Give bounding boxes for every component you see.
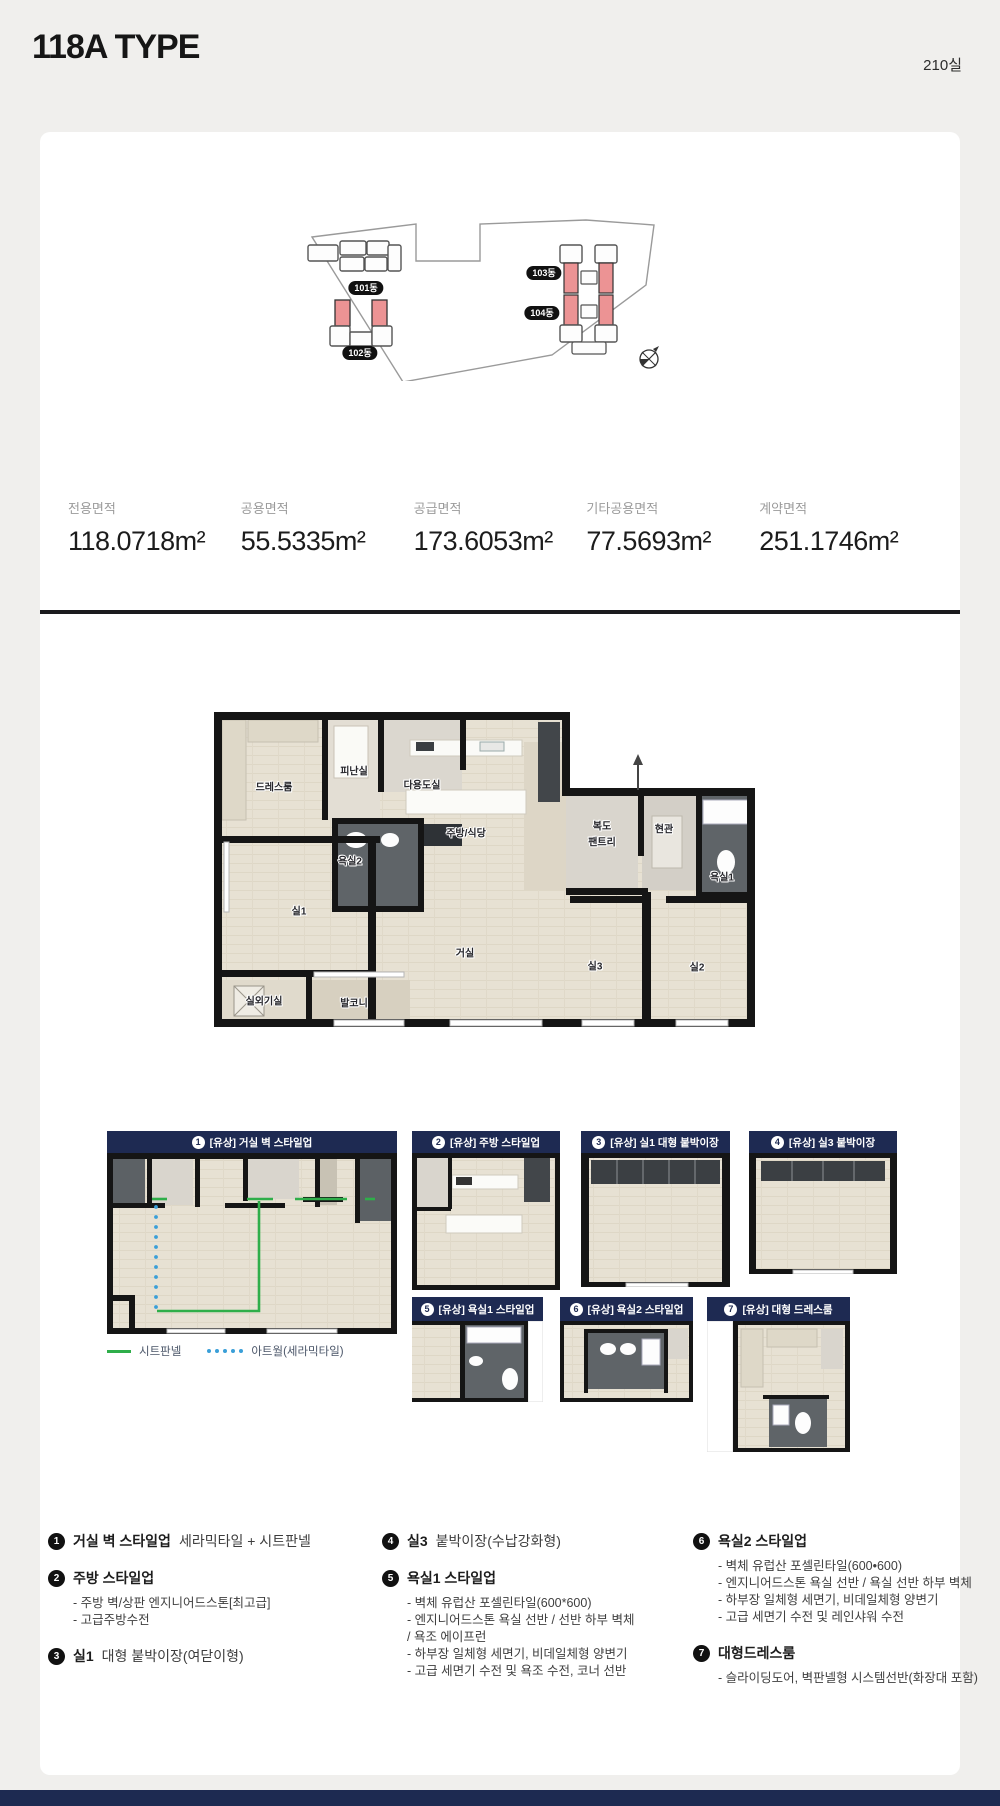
panel-title: [유상] 욕실1 스타일업	[439, 1302, 535, 1317]
panel-number-badge: 6	[570, 1303, 583, 1316]
option-item-7: 7 대형드레스룸 - 슬라이딩도어, 벽판넬형 시스템선반(화장대 포함)	[693, 1643, 993, 1687]
spec-value: 55.5335m²	[241, 526, 414, 557]
panel-number-badge: 4	[771, 1136, 784, 1149]
panel-header: 3 [유상] 실1 대형 붙박이장	[581, 1131, 730, 1153]
panel-title: [유상] 주방 스타일업	[450, 1135, 540, 1150]
legend-artwall: 아트월(세라믹타일)	[207, 1343, 343, 1359]
option-title: 대형드레스룸	[718, 1643, 795, 1663]
panel-image-room3	[749, 1153, 897, 1274]
unit-count-label: 210실	[923, 54, 962, 75]
option-column-2: 4 실3 붙박이장(수납강화형) 5 욕실1 스타일업 - 벽체 유럽산 포셀린…	[382, 1531, 682, 1697]
room-label-room3: 실3	[588, 962, 603, 973]
room-label-pantry: 팬트리	[588, 838, 616, 849]
option-item-5: 5 욕실1 스타일업 - 벽체 유럽산 포셀린타일(600*600) - 엔지니…	[382, 1568, 682, 1680]
panel-header: 5 [유상] 욕실1 스타일업	[412, 1297, 543, 1321]
legend-sheet-panel: 시트판넬	[107, 1343, 181, 1359]
panel-title: [유상] 욕실2 스타일업	[588, 1302, 684, 1317]
option-item-2: 2 주방 스타일업 - 주방 벽/상판 엔지니어드스톤[최고급] - 고급주방수…	[48, 1568, 348, 1629]
room-label-evacuation: 피난실	[340, 767, 368, 778]
room-label-room2: 실2	[690, 963, 705, 974]
room-label-bath1: 욕실1	[710, 873, 734, 884]
room-label-bath2: 욕실2	[338, 857, 362, 868]
room-label-entrance: 현관	[655, 825, 673, 836]
option-item-3: 3 실1 대형 붙박이장(여닫이형)	[48, 1646, 348, 1666]
building-label-104: 104동	[524, 306, 559, 320]
panel-image-bath1	[412, 1321, 543, 1402]
panel-living-wall-styleup: 1 [유상] 거실 벽 스타일업	[107, 1131, 397, 1334]
spec-contract-area: 계약면적 251.1746m²	[759, 498, 932, 557]
option-subtitle: 붙박이장(수납강화형)	[436, 1531, 561, 1551]
room-label-ac-room: 실외기실	[246, 997, 283, 1008]
option-title: 거실 벽 스타일업	[73, 1531, 171, 1551]
blue-dots-swatch	[207, 1349, 243, 1353]
panel-image-dressroom	[707, 1321, 850, 1452]
spec-exclusive-area: 전용면적 118.0718m²	[68, 498, 241, 557]
option-panels: 1 [유상] 거실 벽 스타일업	[40, 1131, 960, 1535]
floor-plan-drawing	[214, 712, 762, 1030]
panel-number-badge: 5	[421, 1303, 434, 1316]
spec-label: 전용면적	[68, 498, 241, 517]
spec-common-area: 공용면적 55.5335m²	[241, 498, 414, 557]
spec-value: 118.0718m²	[68, 526, 241, 557]
section-divider	[40, 610, 960, 614]
panel-bath1-styleup: 5 [유상] 욕실1 스타일업	[412, 1297, 543, 1402]
compass-icon	[640, 346, 659, 368]
panel-number-badge: 3	[592, 1136, 605, 1149]
spec-value: 173.6053m²	[414, 526, 587, 557]
option-details: - 벽체 유럽산 포셀린타일(600*600) - 엔지니어드스톤 욕실 선반 …	[407, 1595, 682, 1680]
option-number-badge: 2	[48, 1570, 65, 1587]
option-title: 욕실2 스타일업	[718, 1531, 807, 1551]
option-subtitle: 대형 붙박이장(여닫이형)	[102, 1646, 244, 1666]
area-specs: 전용면적 118.0718m² 공용면적 55.5335m² 공급면적 173.…	[68, 498, 932, 557]
site-plan-map	[250, 215, 660, 381]
spec-supply-area: 공급면적 173.6053m²	[414, 498, 587, 557]
option-number-badge: 5	[382, 1570, 399, 1587]
option-number-badge: 7	[693, 1645, 710, 1662]
option-details: - 주방 벽/상판 엔지니어드스톤[최고급] - 고급주방수전	[73, 1595, 348, 1629]
floor-plan: 드레스룸 피난실 다용도실 욕실2 주방/식당 복도 팬트리 현관 욕실1 실1…	[214, 712, 762, 1030]
green-line-swatch	[107, 1350, 131, 1353]
legend-label: 시트판넬	[139, 1343, 181, 1359]
panel-room3-closet: 4 [유상] 실3 붙박이장	[749, 1131, 897, 1274]
spec-other-common-area: 기타공용면적 77.5693m²	[586, 498, 759, 557]
option-item-4: 4 실3 붙박이장(수납강화형)	[382, 1531, 682, 1551]
panel-title: [유상] 실3 붙박이장	[789, 1135, 875, 1150]
option-column-3: 6 욕실2 스타일업 - 벽체 유럽산 포셀린타일(600•600) - 엔지니…	[693, 1531, 993, 1704]
panel-header: 1 [유상] 거실 벽 스타일업	[107, 1131, 397, 1153]
option-item-1: 1 거실 벽 스타일업 세라믹타일 + 시트판넬	[48, 1531, 348, 1551]
room-label-balcony: 발코니	[340, 999, 368, 1010]
panel-image-room1	[581, 1153, 730, 1287]
footer-bar	[0, 1790, 1000, 1806]
panel-header: 6 [유상] 욕실2 스타일업	[560, 1297, 693, 1321]
panel-kitchen-styleup: 2 [유상] 주방 스타일업	[412, 1131, 560, 1290]
panel-room1-closet: 3 [유상] 실1 대형 붙박이장	[581, 1131, 730, 1287]
option-column-1: 1 거실 벽 스타일업 세라믹타일 + 시트판넬 2 주방 스타일업 - 주방 …	[48, 1531, 348, 1683]
room-label-corridor: 복도	[593, 822, 611, 833]
panel-title: [유상] 거실 벽 스타일업	[210, 1135, 313, 1150]
panel-image-kitchen	[412, 1153, 560, 1290]
room-label-utility: 다용도실	[404, 781, 441, 792]
option-details: - 벽체 유럽산 포셀린타일(600•600) - 엔지니어드스톤 욕실 선반 …	[718, 1558, 993, 1626]
panel-number-badge: 2	[432, 1136, 445, 1149]
spec-label: 공용면적	[241, 498, 414, 517]
panel-bath2-styleup: 6 [유상] 욕실2 스타일업	[560, 1297, 693, 1402]
option-number-badge: 3	[48, 1648, 65, 1665]
panel-large-dressroom: 7 [유상] 대형 드레스룸	[707, 1297, 850, 1452]
site-plan: 101동 102동 103동 104동	[250, 215, 660, 381]
spec-label: 공급면적	[414, 498, 587, 517]
option-title: 실3	[407, 1531, 428, 1551]
panel-image-bath2	[560, 1321, 693, 1402]
spec-value: 251.1746m²	[759, 526, 932, 557]
panel-title: [유상] 실1 대형 붙박이장	[610, 1135, 719, 1150]
spec-label: 계약면적	[759, 498, 932, 517]
option-title: 주방 스타일업	[73, 1568, 154, 1588]
spec-label: 기타공용면적	[586, 498, 759, 517]
option-details: - 슬라이딩도어, 벽판넬형 시스템선반(화장대 포함)	[718, 1670, 993, 1687]
option-subtitle: 세라믹타일 + 시트판넬	[179, 1531, 311, 1551]
content-card: 101동 102동 103동 104동 전용면적 118.0718m² 공용면적…	[40, 132, 960, 1775]
room-label-living: 거실	[456, 949, 474, 960]
room-label-dressroom: 드레스룸	[256, 783, 293, 794]
panel-header: 4 [유상] 실3 붙박이장	[749, 1131, 897, 1153]
option-item-6: 6 욕실2 스타일업 - 벽체 유럽산 포셀린타일(600•600) - 엔지니…	[693, 1531, 993, 1626]
panel-header: 2 [유상] 주방 스타일업	[412, 1131, 560, 1153]
panel-number-badge: 1	[192, 1136, 205, 1149]
page-title: 118A TYPE	[32, 28, 199, 67]
room-label-room1: 실1	[292, 907, 307, 918]
option-number-badge: 4	[382, 1533, 399, 1550]
option-number-badge: 6	[693, 1533, 710, 1550]
entrance-arrow-icon	[633, 754, 643, 790]
building-label-102: 102동	[342, 346, 377, 360]
room-label-kitchen: 주방/식당	[446, 829, 486, 840]
option-number-badge: 1	[48, 1533, 65, 1550]
option-title: 실1	[73, 1646, 94, 1666]
legend-label: 아트월(세라믹타일)	[251, 1343, 343, 1359]
panel-header: 7 [유상] 대형 드레스룸	[707, 1297, 850, 1321]
panel-number-badge: 7	[724, 1303, 737, 1316]
option-title: 욕실1 스타일업	[407, 1568, 496, 1588]
floor-plan-legend: 시트판넬 아트월(세라믹타일)	[107, 1343, 344, 1359]
building-label-101: 101동	[348, 281, 383, 295]
panel-image-living-wall	[107, 1153, 397, 1334]
building-label-103: 103동	[526, 266, 561, 280]
spec-value: 77.5693m²	[586, 526, 759, 557]
panel-title: [유상] 대형 드레스룸	[742, 1302, 832, 1317]
